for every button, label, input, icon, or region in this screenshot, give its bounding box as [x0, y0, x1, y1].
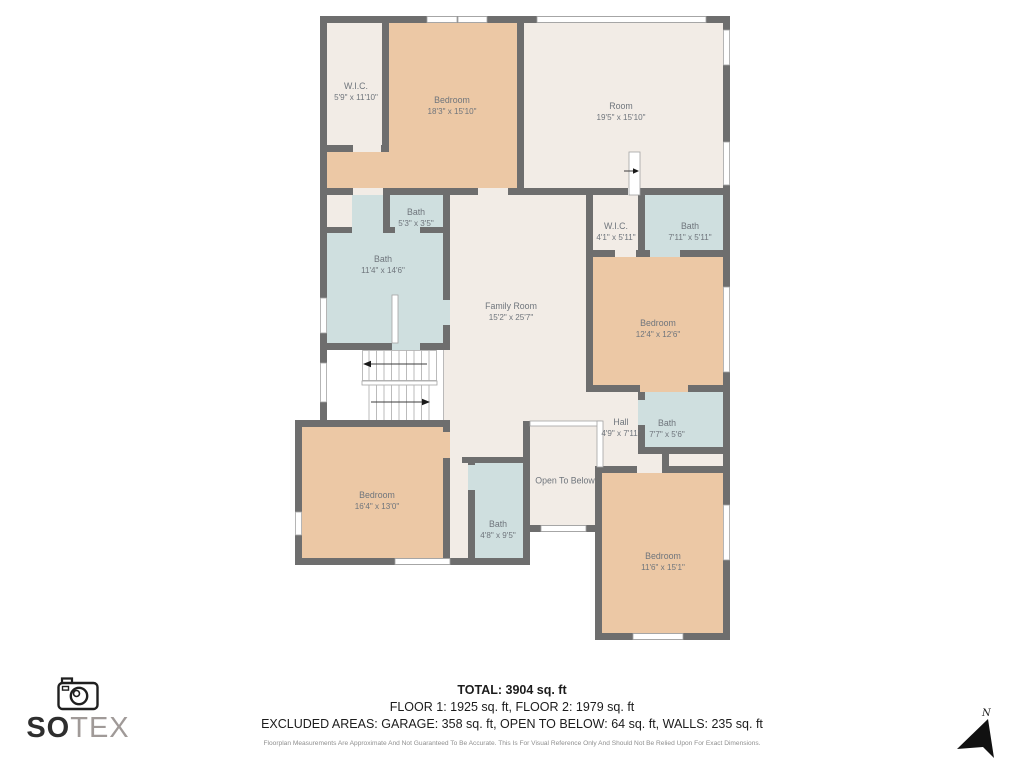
- logo-text: SOTEX: [20, 713, 136, 743]
- floor-areas: FLOOR 1: 1925 sq. ft, FLOOR 2: 1979 sq. …: [0, 699, 1024, 716]
- room-label-bath-small: Bath 5'3" x 3'5": [398, 207, 433, 229]
- floorplan-drawing: [0, 0, 1024, 680]
- room-label-hall: Hall 4'9" x 7'11": [601, 417, 640, 439]
- room-label-bedroom-bottom-left: Bedroom 16'4" x 13'0": [355, 490, 399, 512]
- room-label-wic-1: W.I.C. 5'9" x 11'10": [334, 81, 378, 103]
- room-label-room: Room 19'5" x 15'10": [597, 101, 646, 123]
- total-area: TOTAL: 3904 sq. ft: [0, 682, 1024, 699]
- disclaimer: Floorplan Measurements Are Approximate A…: [0, 740, 1024, 748]
- room-label-family-room: Family Room 15'2" x 25'7": [485, 301, 537, 323]
- area-summary: TOTAL: 3904 sq. ft FLOOR 1: 1925 sq. ft,…: [0, 682, 1024, 748]
- room-label-bedroom-top: Bedroom 18'3" x 15'10": [428, 95, 477, 117]
- sotex-logo: SOTEX: [20, 674, 136, 743]
- room-label-bath-upper-right: Bath 7'11" x 5'11": [668, 221, 711, 243]
- room-label-bath-hall: Bath 7'7" x 5'6": [649, 418, 684, 440]
- room-label-bath-main: Bath 11'4" x 14'6": [361, 254, 405, 276]
- north-label: N: [981, 708, 992, 719]
- room-label-bedroom-bottom-right: Bedroom 11'6" x 15'1": [641, 551, 685, 573]
- logo-text-secondary: TEX: [70, 712, 129, 744]
- room-label-wic-2: W.I.C. 4'1" x 5'11": [596, 221, 635, 243]
- north-arrow: N: [945, 693, 1020, 765]
- room-label-open-to-below: Open To Below: [535, 476, 595, 487]
- room-label-bedroom-right: Bedroom 12'4" x 12'6": [636, 318, 680, 340]
- room-label-bath-bottom: Bath 4'8" x 9'5": [480, 519, 515, 541]
- logo-text-primary: SO: [26, 712, 70, 744]
- excluded-areas: EXCLUDED AREAS: GARAGE: 358 sq. ft, OPEN…: [0, 716, 1024, 733]
- north-arrow-glyph: [957, 719, 994, 758]
- page: W.I.C. 5'9" x 11'10" Bedroom 18'3" x 15'…: [0, 0, 1024, 768]
- camera-icon: [55, 674, 101, 712]
